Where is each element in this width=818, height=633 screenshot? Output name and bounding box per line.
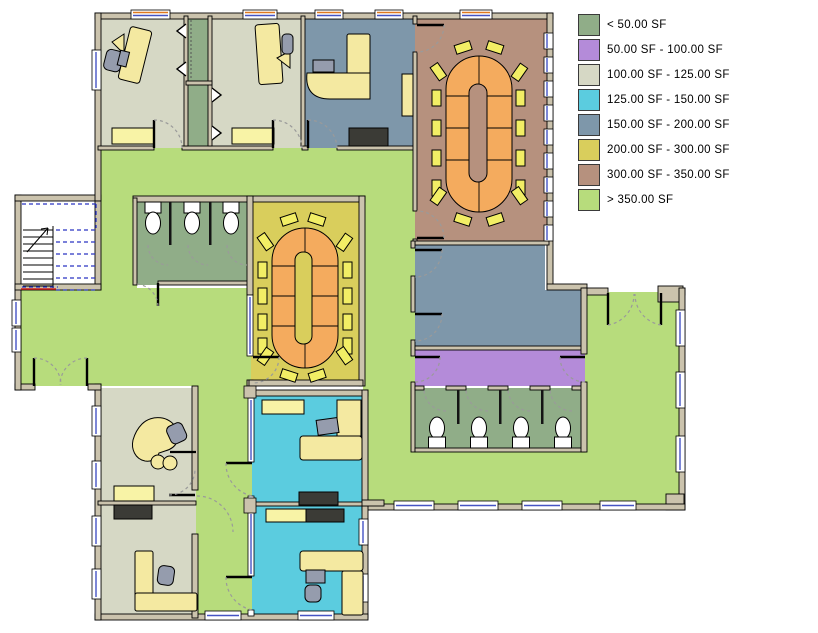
chair[interactable] <box>343 262 352 278</box>
wall-segment <box>411 340 415 356</box>
vestibule-east[interactable] <box>415 350 585 386</box>
legend-label: 150.00 SF - 200.00 SF <box>607 119 730 131</box>
stall-partition <box>457 390 460 424</box>
chair[interactable] <box>432 90 441 106</box>
wall-segment <box>98 146 154 150</box>
wall-segment <box>15 195 21 390</box>
chair[interactable] <box>516 90 525 106</box>
glazed-partition <box>248 610 254 616</box>
toilet[interactable] <box>430 417 445 439</box>
chair[interactable] <box>432 150 441 166</box>
window <box>460 10 492 19</box>
legend-item: 100.00 SF - 125.00 SF <box>578 64 730 85</box>
wall-segment <box>133 198 137 285</box>
bookshelf[interactable] <box>402 74 413 116</box>
wall-segment <box>581 382 587 452</box>
wall-segment <box>581 288 587 354</box>
credenza[interactable] <box>262 400 304 414</box>
wall-segment <box>158 281 251 285</box>
desk-end[interactable] <box>163 456 177 470</box>
legend-swatch <box>578 164 600 186</box>
legend-item: < 50.00 SF <box>578 14 730 35</box>
chair[interactable] <box>516 150 525 166</box>
desk[interactable] <box>135 593 197 611</box>
wall-segment <box>247 196 253 295</box>
wall-segment <box>192 386 198 490</box>
chair[interactable] <box>343 314 352 330</box>
wall-segment <box>415 241 549 245</box>
window <box>544 57 553 73</box>
chair[interactable] <box>258 262 267 278</box>
toilet[interactable] <box>514 417 529 439</box>
chair[interactable] <box>343 288 352 304</box>
conference-table-opening <box>469 84 487 182</box>
wall-segment <box>488 386 508 390</box>
toilet-tank[interactable] <box>223 202 239 213</box>
desk[interactable] <box>300 436 362 460</box>
window <box>131 10 170 19</box>
desk[interactable] <box>342 571 363 615</box>
wall-segment <box>547 13 553 288</box>
meeting-room-east[interactable] <box>415 245 585 348</box>
legend-label: 125.00 SF - 150.00 SF <box>607 94 730 106</box>
window <box>544 129 553 145</box>
wall-segment <box>359 196 365 386</box>
legend-swatch <box>578 114 600 136</box>
credenza[interactable] <box>112 128 154 144</box>
wall-segment <box>411 276 415 312</box>
wall-segment <box>362 390 368 506</box>
legend-swatch <box>578 89 600 111</box>
legend-label: < 50.00 SF <box>607 19 667 31</box>
wall-segment <box>411 382 415 452</box>
legend-swatch <box>578 189 600 211</box>
chair[interactable] <box>258 288 267 304</box>
desk[interactable] <box>307 73 370 99</box>
chair[interactable] <box>157 565 175 586</box>
cabinet[interactable] <box>337 400 361 436</box>
wall-segment <box>337 146 415 150</box>
desk[interactable] <box>255 23 283 85</box>
legend-item: 50.00 SF - 100.00 SF <box>578 39 730 60</box>
chair[interactable] <box>432 120 441 136</box>
chair[interactable] <box>282 34 293 54</box>
desk[interactable] <box>347 34 370 75</box>
chair[interactable] <box>516 120 525 136</box>
window <box>544 33 553 49</box>
wall-segment <box>415 346 585 350</box>
corridor-west-strip[interactable] <box>101 196 137 292</box>
credenza[interactable] <box>232 128 274 144</box>
legend-item: 200.00 SF - 300.00 SF <box>578 139 730 160</box>
wall-segment <box>411 241 415 248</box>
wall-segment <box>182 146 273 150</box>
conference-table-opening <box>295 252 312 344</box>
toilet[interactable] <box>472 417 487 439</box>
legend-swatch <box>578 139 600 161</box>
window <box>375 10 403 19</box>
legend-label: 300.00 SF - 350.00 SF <box>607 169 730 181</box>
wall-segment <box>415 448 585 452</box>
wall-segment <box>186 81 212 85</box>
stall-partition <box>499 390 502 424</box>
wall-segment <box>413 52 417 211</box>
toilet-tank[interactable] <box>145 202 161 213</box>
legend-swatch <box>578 14 600 36</box>
stall-partition <box>209 202 212 245</box>
printer[interactable] <box>313 60 334 72</box>
legend-label: 50.00 SF - 100.00 SF <box>607 44 723 56</box>
toilet-tank[interactable] <box>429 437 446 448</box>
wall-segment <box>249 380 363 386</box>
window <box>544 105 553 121</box>
corridor-south-band[interactable] <box>368 446 590 506</box>
wall-segment <box>415 386 424 390</box>
window <box>544 177 553 193</box>
file-cabinet[interactable] <box>349 128 388 146</box>
legend-item: 300.00 SF - 350.00 SF <box>578 164 730 185</box>
area-legend[interactable]: < 50.00 SF 50.00 SF - 100.00 SF 100.00 S… <box>578 14 730 214</box>
window <box>544 201 553 217</box>
wall-segment <box>301 16 305 146</box>
credenza[interactable] <box>114 486 154 501</box>
corridor-north-band[interactable] <box>98 146 418 204</box>
toilet-tank[interactable] <box>513 437 530 448</box>
wall-segment <box>413 16 417 24</box>
legend-swatch <box>578 64 600 86</box>
legend-label: 200.00 SF - 300.00 SF <box>607 144 730 156</box>
legend-swatch <box>578 39 600 61</box>
wall-segment <box>249 390 368 396</box>
credenza[interactable] <box>266 509 306 522</box>
file-cabinet[interactable] <box>114 505 152 519</box>
legend-item: 150.00 SF - 200.00 SF <box>578 114 730 135</box>
chair[interactable] <box>258 314 267 330</box>
window <box>243 10 277 19</box>
wall-segment <box>362 500 384 506</box>
wall-segment <box>15 195 101 201</box>
wall-segment <box>530 386 550 390</box>
open-area-west[interactable] <box>21 288 251 386</box>
legend-item: > 350.00 SF <box>578 189 730 210</box>
toilet[interactable] <box>185 212 200 234</box>
legend-label: > 350.00 SF <box>607 194 673 206</box>
toilet-tank[interactable] <box>471 437 488 448</box>
chair[interactable] <box>305 585 321 602</box>
toilet[interactable] <box>556 417 571 439</box>
floor-plan-view[interactable]: < 50.00 SF 50.00 SF - 100.00 SF 100.00 S… <box>0 0 818 633</box>
monitor[interactable] <box>306 570 325 583</box>
mullion-post <box>244 386 256 398</box>
window <box>544 81 553 97</box>
stall-partition <box>541 390 544 424</box>
legend-item: 125.00 SF - 150.00 SF <box>578 89 730 110</box>
window <box>544 225 553 241</box>
file-cabinet[interactable] <box>299 492 338 505</box>
window <box>315 10 343 19</box>
wall-segment <box>95 13 101 201</box>
toilet-tank[interactable] <box>555 437 572 448</box>
toilet[interactable] <box>224 212 239 234</box>
desk[interactable] <box>300 551 363 571</box>
window <box>544 153 553 169</box>
legend-label: 100.00 SF - 125.00 SF <box>607 69 730 81</box>
wall-segment <box>98 501 196 505</box>
toilet[interactable] <box>146 212 161 234</box>
stall-partition <box>169 202 172 245</box>
toilet-tank[interactable] <box>184 202 200 213</box>
file-cabinet[interactable] <box>306 509 344 522</box>
wall-segment <box>446 386 466 390</box>
open-area-east-wing[interactable] <box>585 292 681 506</box>
monitor[interactable] <box>316 418 339 436</box>
mullion-post <box>244 498 256 513</box>
wall-segment <box>88 384 101 390</box>
